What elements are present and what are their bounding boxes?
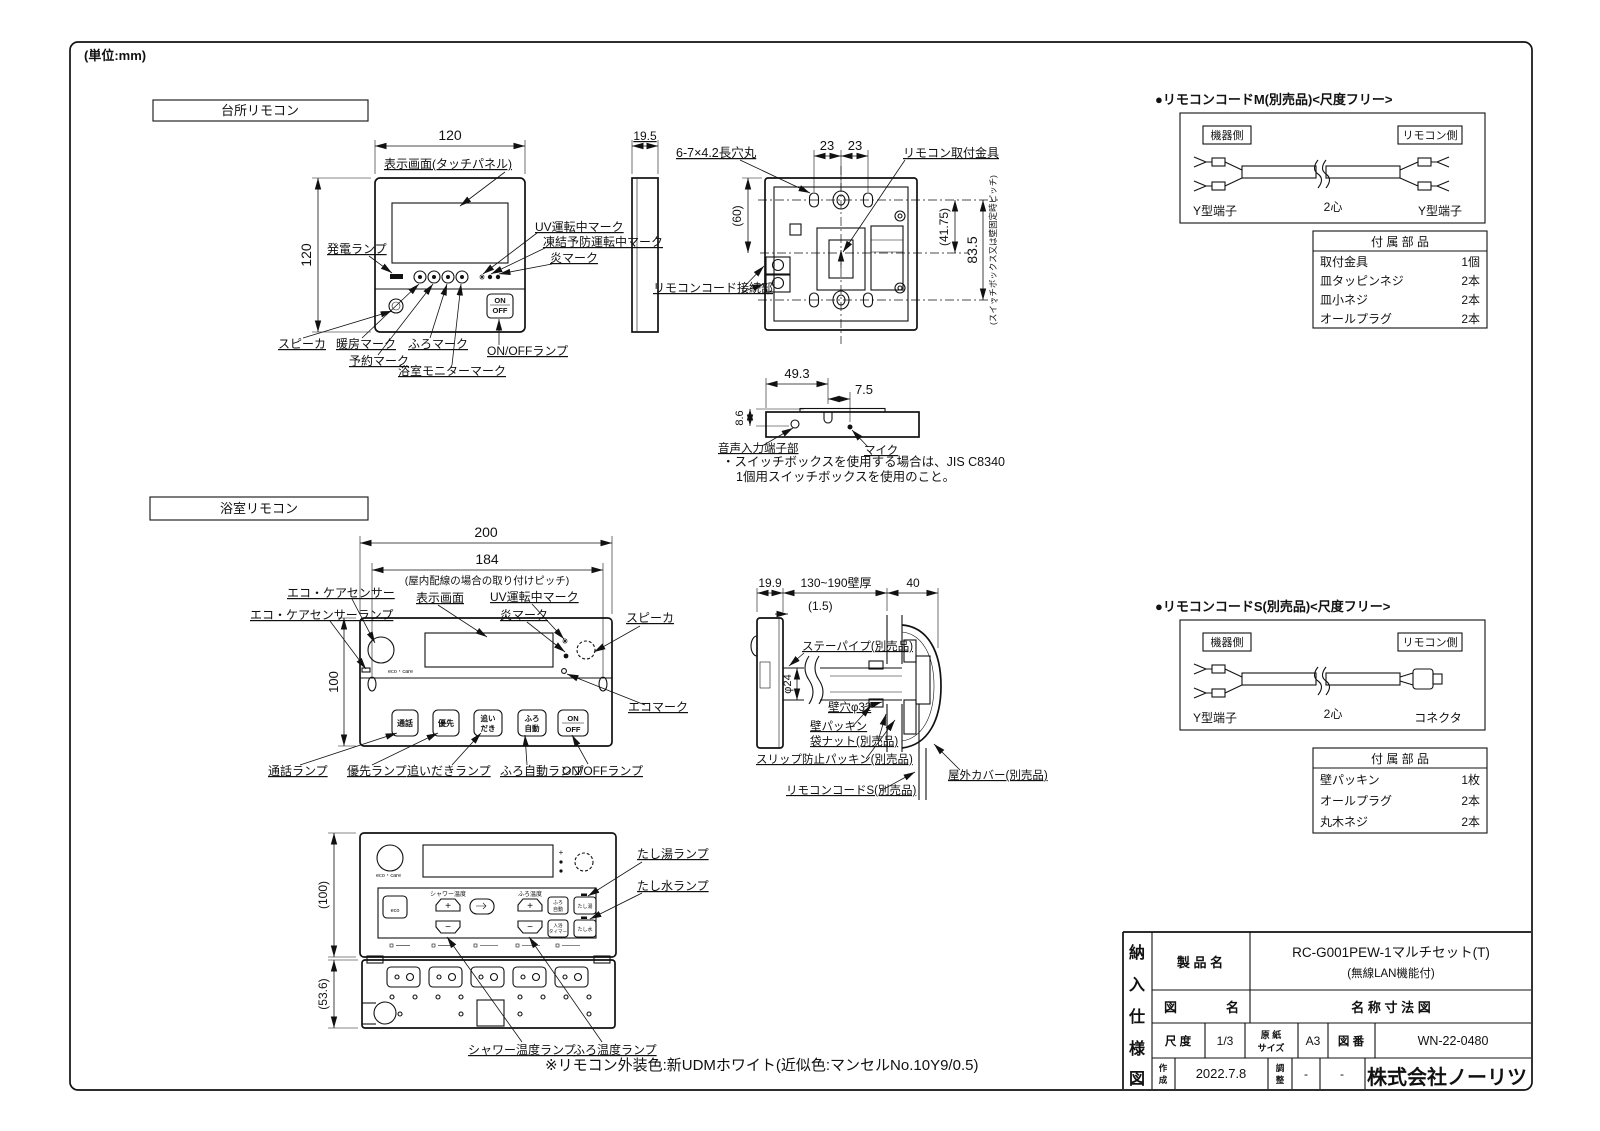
cord-s-table-header: 付 属 部 品 — [1371, 751, 1429, 766]
talk-button-label: 通話 — [397, 718, 413, 728]
table-row: オールプラグ — [1320, 312, 1392, 326]
cord-s-remote-side: リモコン側 — [1403, 636, 1458, 649]
bracket-60-dim: (60) — [730, 205, 744, 226]
furo-minus-label: − — [527, 922, 533, 933]
timer-label-2: タイマー — [549, 928, 568, 935]
drawing-no-value: WN-22-0480 — [1418, 1034, 1489, 1048]
pitch-23a-dim: 23 — [820, 138, 834, 153]
table-qty: 1個 — [1461, 255, 1480, 269]
pipe-dia-dim: φ24 — [782, 674, 794, 693]
bath-wall-side-view: 19.9 130~190壁厚 40 (1.5) φ24 ステーパイプ(別売品) … — [751, 575, 1048, 800]
hot-add-label: たし湯 — [577, 903, 592, 910]
wall-packing-label: 壁パッキン — [810, 719, 867, 733]
bracket-label: リモコン取付金具 — [903, 145, 999, 160]
detail-plus-mark: + — [559, 848, 564, 857]
figure-label-r: 名 — [1226, 1000, 1239, 1015]
bath-height-dim: 100 — [326, 671, 341, 693]
table-row: オールプラグ — [1320, 794, 1392, 808]
kitchen-onoff-off: OFF — [493, 306, 508, 315]
drawing-no-label: 図 番 — [1338, 1034, 1365, 1048]
exterior-color-note: ※リモコン外装色:新UDMホワイト(近似色:マンセルNo.10Y9/0.5) — [545, 1057, 978, 1074]
bath-display-label: 表示画面 — [416, 591, 464, 605]
cord-m-title: ●リモコンコードM(別売品)<尺度フリー> — [1155, 92, 1393, 107]
doc-type-char: 様 — [1129, 1039, 1146, 1058]
auto-small-2: 自動 — [553, 906, 563, 913]
mic-493-dim: 49.3 — [784, 366, 809, 381]
bath-onoff-off: OFF — [566, 725, 581, 734]
eco-care-caption: eco・care — [388, 669, 413, 675]
hot-add-lamp-mark — [581, 894, 587, 897]
bath-display — [425, 633, 553, 667]
audio-input-label: 音声入力端子部 — [718, 441, 799, 455]
bath-flame-mark — [564, 654, 569, 659]
switchbox-note-1: ・スイッチボックスを使用する場合は、JIS C8340 — [722, 454, 1005, 469]
detail-100-dim: (100) — [316, 881, 330, 909]
bracket-835-dim: 83.5 — [964, 236, 980, 263]
furo-temp-lamp-label: ふろ温度ランプ — [573, 1042, 657, 1057]
auto-button-label-1: ふろ — [525, 714, 540, 723]
cord-hook — [374, 1002, 396, 1024]
flame-mark-icon — [496, 275, 500, 279]
priority-button-label: 優先 — [437, 718, 454, 728]
cord-s-section: ●リモコンコードS(別売品)<尺度フリー> 機器側 リモコン側 Y型端子 2心 … — [1155, 599, 1487, 833]
power-lamp-mark — [390, 274, 403, 279]
cord-m-accessory-table: 付 属 部 品 取付金具 1個 皿タッピンネジ 2本 皿小ネジ 2本 オールプラ… — [1313, 231, 1487, 328]
bath-pitch-note: (屋内配線の場合の取り付けピッチ) — [405, 574, 570, 587]
water-add-label: たし水 — [577, 926, 592, 933]
mic-notch — [824, 412, 832, 423]
bath-front-view: eco・care 通話 優先 追い だき ふろ 自動 ON OFF — [360, 618, 612, 746]
created-label-1: 作 — [1159, 1063, 1168, 1073]
created-date: 2022.7.8 — [1196, 1066, 1247, 1081]
stay-pipe-label: ステーパイプ(別売品) — [802, 640, 913, 653]
doc-type-char: 仕 — [1128, 1007, 1145, 1026]
water-add-lamp-label: たし水ランプ — [637, 879, 709, 893]
figure-name: 名 称 寸 法 図 — [1351, 1000, 1430, 1015]
auto-small-1: ふろ — [553, 900, 563, 906]
kitchen-depth-dim: 19.5 — [633, 129, 657, 143]
freeze-mark-icon — [488, 275, 492, 279]
mic-hole — [848, 425, 853, 430]
cord-m-section: ●リモコンコードM(別売品)<尺度フリー> 機器側 リモコン側 Y型端子 2心 … — [1155, 92, 1487, 328]
outdoor-cover-label: 屋外カバー(別売品) — [948, 769, 1048, 782]
bath-title: 浴室リモコン — [220, 501, 298, 516]
cover-40-dim: 40 — [906, 576, 920, 590]
bath-uv-label: UV運転中マーク — [490, 589, 579, 604]
shower-temp-caption: シャワー温度 — [430, 890, 466, 898]
eco-sensor-lamp-label: エコ・ケアセンサーランプ — [250, 608, 393, 622]
doc-type-char: 入 — [1129, 976, 1145, 994]
water-add-lamp-mark — [581, 917, 587, 920]
cord-m-right-terminal: Y型端子 — [1418, 204, 1462, 218]
units-note: (単位:mm) — [84, 48, 146, 63]
bath-pitch-dim: 184 — [475, 551, 499, 567]
drawing-sheet: (単位:mm) 台所リモコン ON OFF 120 120 表示画面(タッチパネ… — [0, 0, 1600, 1131]
reheat-lamp-label: 追いだきランプ — [407, 763, 491, 778]
slot-hole-label: 6-7×4.2長穴丸 — [676, 145, 757, 160]
bath-uv-mark — [562, 638, 568, 644]
toggle-arrow-icon — [476, 903, 486, 909]
slip-packing-label: スリップ防止パッキン(別売品) — [756, 752, 913, 766]
product-name-label: 製 品 名 — [1176, 955, 1223, 970]
pitch-23b-dim: 23 — [848, 138, 862, 153]
table-row: 丸木ネジ — [1320, 815, 1368, 829]
bath-section: 浴室リモコン eco・care 通話 優先 追い だき ふろ 自動 ON OFF… — [150, 497, 1048, 1057]
kitchen-front-view: ON OFF — [375, 178, 525, 332]
wall-thickness-dim: 130~190壁厚 — [800, 575, 871, 590]
bath-onoff-lamp-label: ON/OFFランプ — [562, 764, 643, 778]
cord-s-right-terminal: コネクタ — [1414, 711, 1462, 725]
uv-mark-label: UV運転中マーク — [535, 219, 624, 234]
paper-size-label-2: サイズ — [1258, 1042, 1285, 1053]
shower-plus-label: + — [445, 901, 451, 912]
timer-label-1: 入浴 — [553, 922, 563, 929]
gap-15-dim: (1.5) — [808, 599, 833, 613]
audio-jack-hole — [791, 420, 799, 428]
table-row: 取付金具 — [1320, 254, 1368, 269]
reheat-button-label-2: だき — [481, 724, 496, 733]
table-qty: 2本 — [1461, 274, 1480, 288]
power-lamp-label: 発電ランプ — [327, 242, 387, 256]
switchbox-note-2: 1個用スイッチボックスを使用のこと。 — [736, 469, 955, 484]
back-536-dim: (53.6) — [316, 978, 330, 1009]
toggle-button — [470, 899, 494, 914]
bath-detail-view: eco・care + eco シャワー温度 + − ふろ温度 + − ふろ 自動… — [360, 833, 616, 957]
kitchen-section: 台所リモコン ON OFF 120 120 表示画面(タッチパネル) 発電ランプ… — [153, 100, 1005, 484]
kitchen-bracket-view — [758, 166, 998, 344]
title-block: 納 入 仕 様 図 製 品 名 RC-G001PEW-1マルチセット(T) (無… — [1123, 932, 1531, 1089]
flame-mark-label: 炎マーク — [550, 251, 598, 265]
bath-speaker — [577, 641, 595, 659]
kitchen-title: 台所リモコン — [221, 103, 299, 118]
freeze-mark-label: 凍結予防運転中マーク — [543, 234, 663, 249]
cord-s-graphic — [1194, 664, 1442, 698]
paper-size-label-1: 原 紙 — [1261, 1029, 1282, 1040]
cord-s-left-terminal: Y型端子 — [1193, 711, 1237, 725]
speaker-label: スピーカ — [278, 337, 326, 351]
uv-mark-icon — [479, 274, 485, 280]
table-qty: 1枚 — [1461, 772, 1480, 787]
cord-m-graphic — [1194, 157, 1449, 191]
eco-button-label: eco — [391, 908, 400, 914]
kitchen-mic-view: 49.3 7.5 8.6 音声入力端子部 マイク — [718, 366, 919, 457]
bath-depth-dim: 19.9 — [758, 576, 782, 590]
lamp-marks-row — [390, 944, 580, 947]
blank-cell-value: - — [1340, 1067, 1344, 1081]
bracket-pitch-note: (スイッチボックス又は壁固定時ピッチ) — [988, 175, 998, 325]
kitchen-display — [392, 203, 508, 263]
bath-eco-mark — [562, 669, 567, 674]
table-qty: 2本 — [1461, 815, 1480, 829]
cord-s-core: 2心 — [1324, 707, 1343, 721]
product-name: RC-G001PEW-1マルチセット(T) — [1292, 945, 1490, 960]
kitchen-display-label: 表示画面(タッチパネル) — [384, 157, 512, 171]
paper-size-value: A3 — [1306, 1034, 1321, 1048]
cord-m-core: 2心 — [1324, 200, 1343, 214]
kitchen-side-view: 19.5 — [632, 129, 658, 332]
bracket-4175-dim: (41.75) — [937, 208, 951, 246]
shower-temp-lamp-label: シャワー温度ランプ — [468, 1042, 576, 1057]
table-row: 皿タッピンネジ — [1320, 274, 1404, 288]
furo-temp-caption: ふろ温度 — [518, 890, 542, 898]
talk-lamp-label: 通話ランプ — [268, 763, 328, 778]
reheat-button-label-1: 追い — [481, 713, 496, 723]
table-row: 皿小ネジ — [1320, 293, 1368, 307]
cord-m-device-side: 機器側 — [1211, 128, 1244, 142]
cord-m-remote-side: リモコン側 — [1403, 129, 1458, 142]
bath-flame-label: 炎マーク — [500, 608, 548, 622]
cord-s-title: ●リモコンコードS(別売品)<尺度フリー> — [1155, 599, 1391, 614]
cord-s-accessory-table: 付 属 部 品 壁パッキン 1枚 オールプラグ 2本 丸木ネジ 2本 — [1313, 748, 1487, 833]
cord-m-left-terminal: Y型端子 — [1193, 204, 1237, 218]
eco-sensor-label: エコ・ケアセンサー — [287, 586, 395, 600]
bath-back-view — [362, 956, 615, 1028]
kitchen-height-dim: 120 — [298, 243, 314, 267]
bath-monitor-mark-label: 浴室モニターマーク — [398, 363, 506, 378]
table-qty: 2本 — [1461, 312, 1480, 326]
product-name-note: (無線LAN機能付) — [1347, 966, 1435, 980]
mic-75-dim: 7.5 — [855, 382, 873, 397]
adjust-label-1: 調 — [1276, 1063, 1285, 1073]
eco-care-caption-2: eco・care — [376, 873, 401, 879]
kitchen-width-dim: 120 — [438, 127, 462, 143]
hot-add-lamp-label: たし湯ランプ — [637, 847, 709, 861]
auto-button-label-2: 自動 — [525, 723, 540, 733]
furo-plus-label: + — [527, 901, 533, 912]
adjust-label-2: 整 — [1276, 1075, 1285, 1085]
drawing-canvas: (単位:mm) 台所リモコン ON OFF 120 120 表示画面(タッチパネ… — [0, 0, 1600, 1131]
bath-width-dim: 200 — [474, 524, 498, 540]
table-row: 壁パッキン — [1320, 772, 1380, 787]
doc-type-char: 納 — [1129, 943, 1145, 962]
scale-label: 尺 度 — [1165, 1034, 1192, 1048]
furo-mark-label: ふろマーク — [408, 337, 468, 351]
scale-value: 1/3 — [1217, 1034, 1234, 1048]
table-qty: 2本 — [1461, 794, 1480, 808]
cord-s-label: リモコンコードS(別売品) — [786, 784, 916, 797]
figure-label-l: 図 — [1164, 1000, 1177, 1015]
kitchen-onoff-on: ON — [494, 296, 505, 305]
bath-speaker-label: スピーカ — [626, 611, 674, 625]
cord-m-table-header: 付 属 部 品 — [1371, 234, 1429, 249]
company-logo: 株式会社ノーリツ — [1367, 1065, 1527, 1089]
eco-button — [383, 896, 407, 918]
created-label-2: 成 — [1159, 1075, 1168, 1085]
shower-minus-label: − — [445, 922, 451, 933]
table-qty: 2本 — [1461, 293, 1480, 307]
bath-onoff-on: ON — [567, 714, 578, 723]
kitchen-onoff-lamp-label: ON/OFFランプ — [487, 344, 568, 358]
priority-lamp-label: 優先ランプ — [347, 764, 407, 778]
adjust-value: - — [1304, 1067, 1308, 1081]
bag-nut-label: 袋ナット(別売品) — [810, 734, 898, 748]
mic-86-dim: 8.6 — [734, 410, 746, 425]
cord-s-device-side: 機器側 — [1211, 635, 1244, 649]
doc-type-char: 図 — [1129, 1070, 1145, 1088]
